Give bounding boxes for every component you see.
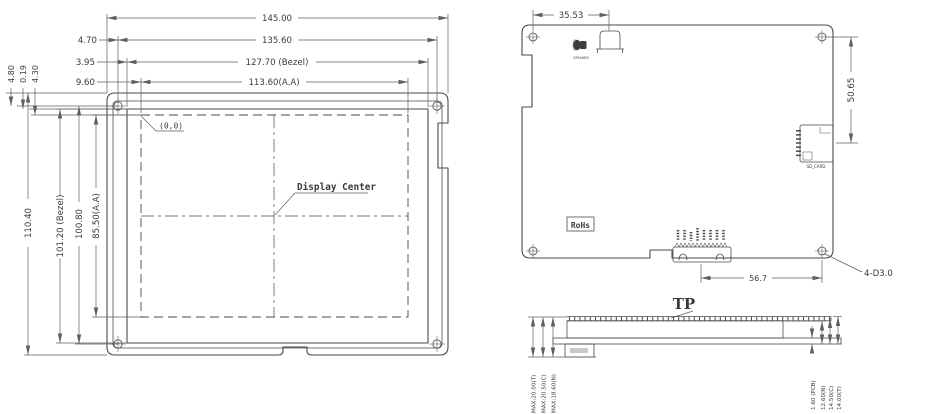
side-dim-pcb: 1.60 (PCB)	[811, 380, 817, 410]
dim-overall-height: 110.40	[24, 208, 34, 238]
side-dim-max-c: MAX:20.50(C)	[542, 374, 548, 413]
display-body	[567, 321, 783, 338]
offset-top-a: 4.80	[7, 65, 16, 83]
offset-top-b: 0.19	[19, 65, 28, 83]
rohs-label: RoHs	[571, 221, 590, 230]
interface-connector	[673, 243, 731, 262]
dim-sd-offset: 50.65	[847, 78, 857, 103]
side-dim-max-n: MAX:18.60(N)	[552, 374, 558, 413]
front-inner-lip	[113, 101, 442, 348]
dim-active-width: 113.60(A.A)	[248, 78, 299, 88]
front-offsets-top-left: 4.80 0.19 4.30	[6, 65, 141, 115]
dim-buzzer-offset: 35.53	[559, 11, 584, 21]
origin-label: (0,0)	[159, 122, 183, 131]
sd-card-socket	[799, 125, 834, 162]
tp-label: TP	[673, 295, 695, 313]
connector-pin-labels	[678, 228, 724, 241]
side-dim-c: 14.50(C)	[829, 386, 835, 410]
dim-connector-to-hole: 56.7	[749, 274, 767, 283]
offset-hole-to-active: 9.60	[76, 78, 95, 88]
mounting-holes-label: 4-D3.0	[864, 269, 893, 279]
offset-edge-to-hole: 4.70	[78, 36, 97, 46]
side-dim-max-t: MAX:20.00(T)	[532, 375, 538, 413]
mounting-holes-callout: 4-D3.0	[825, 254, 893, 279]
front-view: 145.00 135.60 127.70 (Bezel) 113.60(A.A)…	[6, 12, 448, 355]
pcb	[553, 338, 841, 344]
back-view: SPEAKER 35.53 SD_CARD	[522, 9, 893, 283]
touch-panel-band	[567, 317, 831, 321]
mechanical-drawing: 145.00 135.60 127.70 (Bezel) 113.60(A.A)…	[0, 0, 930, 414]
side-dim-t: 14.00(T)	[837, 386, 843, 410]
offset-top-c: 4.30	[31, 65, 40, 83]
front-dimensions-top: 145.00 135.60 127.70 (Bezel) 113.60(A.A)…	[76, 12, 448, 88]
back-outline	[522, 25, 833, 258]
front-dimensions-left: 110.40 101.20 (Bezel) 100.80 85.50(A.A)	[21, 93, 141, 355]
bottom-component	[565, 344, 594, 357]
side-view: TP MAX:20.00(T) MAX:20.50(C) MAX:18.60	[528, 295, 843, 413]
dim-overall-width: 145.00	[262, 14, 292, 24]
dim-active-height: 85.50(A.A)	[92, 193, 102, 239]
speaker-icon	[573, 39, 587, 51]
origin-callout: (0,0)	[141, 116, 184, 131]
dim-bezel-height: 101.20 (Bezel)	[56, 195, 66, 258]
mounting-hole	[429, 336, 445, 352]
display-center-callout: Display Center	[275, 182, 376, 215]
side-dim-n: 12.60(N)	[821, 385, 827, 410]
drawing-canvas: 145.00 135.60 127.70 (Bezel) 113.60(A.A)…	[0, 0, 930, 414]
side-dims-right: 1.60 (PCB) 12.60(N) 14.50(C) 14.00(T)	[785, 317, 843, 411]
connector-to-hole-dimension: 56.7	[701, 260, 822, 283]
mounting-hole	[815, 30, 829, 44]
buzzer-offset-dimension: 35.53	[533, 9, 609, 31]
dim-hole-span-width: 135.60	[262, 36, 292, 46]
bezel-rect	[127, 109, 428, 343]
side-dims-left: MAX:20.00(T) MAX:20.50(C) MAX:18.60(N)	[528, 317, 596, 413]
offset-hole-to-bezel: 3.95	[76, 58, 95, 68]
buzzer-outline	[596, 31, 624, 53]
mounting-hole	[526, 244, 540, 258]
speaker-label: SPEAKER	[573, 56, 589, 60]
dim-hole-span-height: 100.80	[75, 209, 85, 239]
mounting-hole	[526, 30, 540, 44]
display-center-label: Display Center	[297, 182, 376, 193]
mounting-hole	[429, 98, 445, 114]
front-outline	[107, 93, 448, 355]
sd-card-label: SD_CARD	[806, 164, 825, 169]
dim-bezel-width: 127.70 (Bezel)	[246, 58, 309, 68]
rohs-badge: RoHs	[567, 217, 594, 231]
front-mounting-holes	[110, 98, 445, 352]
mounting-hole	[815, 244, 829, 258]
